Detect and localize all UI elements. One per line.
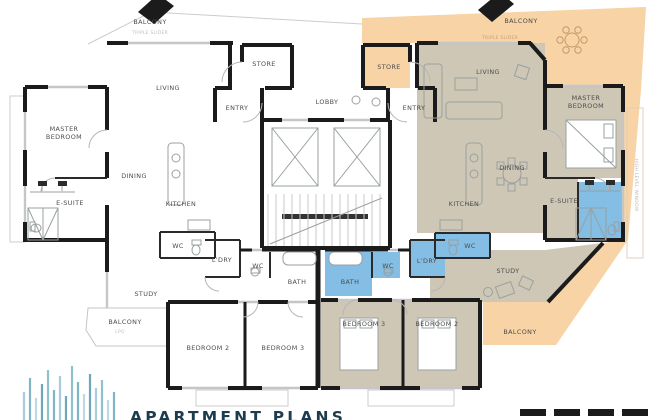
annotation-right-slider: TRIPLE SLIDER [481,35,518,41]
label-left-balcony-bottom: BALCONY [108,318,141,326]
toilet-icon [192,240,201,255]
label-left-bedroom2: BEDROOM 2 [186,344,229,352]
esuite-right-beige [545,178,578,240]
label-right-bath: BATH [341,278,360,286]
stair-handrail [282,214,368,219]
label-left-balcony-top: BALCONY [133,18,166,26]
label-right-wc-b: WC [382,262,394,270]
label-left-master-1: MASTER [50,125,79,133]
lobby-person-icon [352,96,360,104]
label-right-master-2: BEDROOM [568,102,604,110]
label-left-dining: DINING [121,172,147,180]
label-left-store: STORE [252,60,275,68]
label-right-dining: DINING [499,164,525,172]
label-right-study: STUDY [496,267,519,275]
label-left-esuite: E-SUITE [56,199,84,207]
bathtub-icon [329,252,362,265]
label-left-study: STUDY [134,290,157,298]
logo-text: APARTMENT PLANS [130,408,346,420]
shower-icon [28,208,58,240]
label-left-ldry: L'DRY [212,256,232,264]
cutoff-wall-1 [520,409,546,416]
label-right-master-1: MASTER [572,94,601,102]
label-left-kitchen: KITCHEN [166,200,197,208]
kitchen-island-icon [168,143,210,230]
logo: APARTMENT PLANS [24,366,346,420]
label-left-bedroom3: BEDROOM 3 [261,344,304,352]
label-right-balcony-top: BALCONY [504,17,537,25]
label-right-balcony-bottom: BALCONY [503,328,536,336]
bathtub-icon [283,252,316,265]
annotation-left-lpo: LPO [115,329,125,335]
label-right-wc-a: WC [464,242,476,250]
label-left-bath: BATH [288,278,307,286]
label-left-entry: ENTRY [226,104,249,112]
floor-plan-page: LOBBY BALCONY TRIPLE SLIDER LIVING STORE… [0,0,650,420]
cutoff-wall-2 [554,409,580,416]
logo-mark-skyline-icon [24,366,114,420]
label-right-kitchen: KITCHEN [449,200,480,208]
label-right-living: LIVING [476,68,500,76]
label-left-wc-b: WC [252,262,264,270]
elevator-icon [272,128,318,186]
vanity-basin-icon [30,181,75,192]
balcony-bottom-left-outline [86,308,168,346]
label-right-bedroom2: BEDROOM 2 [415,320,458,328]
label-right-entry: ENTRY [403,104,426,112]
label-left-living: LIVING [156,84,180,92]
lobby-person-icon [372,98,380,106]
floor-plan-canvas: LOBBY BALCONY TRIPLE SLIDER LIVING STORE… [0,0,650,420]
label-left-master-2: BEDROOM [46,133,82,141]
bed-icon [566,120,616,168]
elevator-icon [334,128,380,186]
stairs-icon [268,194,382,246]
label-right-ldry: L'DRY [417,257,437,265]
label-right-esuite: E-SUITE [550,197,578,205]
annotation-left-slider: TRIPLE SLIDER [131,30,168,36]
label-right-store: STORE [377,63,400,71]
cutoff-wall-3 [588,409,614,416]
label-lobby: LOBBY [316,98,339,106]
cutoff-wall-4 [622,409,648,416]
annotation-high-window: HIGH LEVEL WINDOW [633,159,639,212]
label-right-bedroom3: BEDROOM 3 [342,320,385,328]
label-left-wc-a: WC [172,242,184,250]
